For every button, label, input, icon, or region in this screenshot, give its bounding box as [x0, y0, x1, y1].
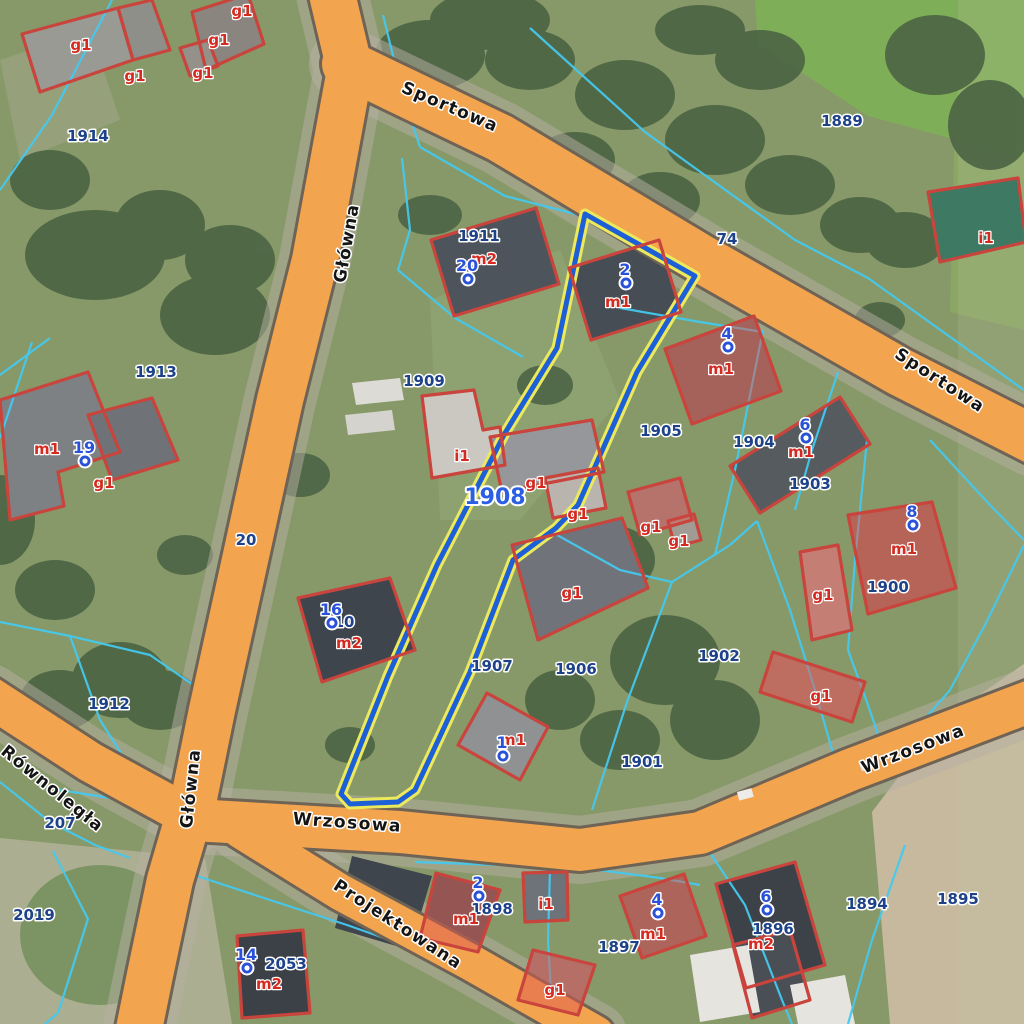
- parcel-label-1895: 1895: [937, 890, 979, 908]
- parcel-label-1901: 1901: [621, 753, 663, 771]
- building-label-m2: m2: [748, 935, 774, 953]
- building-label-g1: g1: [561, 584, 582, 602]
- address-number-label: 2: [619, 260, 630, 279]
- address-marker-center: [725, 344, 730, 349]
- building-label-g1: g1: [208, 31, 229, 49]
- building-label-g1: g1: [525, 474, 546, 492]
- selected-parcel-label-1908: 1908: [464, 485, 525, 510]
- address-marker-center: [476, 893, 481, 898]
- parcel-label-1906: 1906: [555, 660, 597, 678]
- map-viewport[interactable]: SportowaSportowaGłównaGłównaRównoległaWr…: [0, 0, 1024, 1024]
- address-marker-center: [764, 907, 769, 912]
- address-number-label: 14: [235, 945, 257, 964]
- building-label-g1: g1: [192, 64, 213, 82]
- building-label-m1: m1: [605, 293, 631, 311]
- address-point-2[interactable]: 2: [472, 873, 485, 903]
- parcel-label-1902: 1902: [698, 647, 740, 665]
- address-number-label: 20: [456, 256, 478, 275]
- building-label-g1: g1: [93, 474, 114, 492]
- parcel-label-1900: 1900: [867, 578, 909, 596]
- building-label-m1: m1: [788, 443, 814, 461]
- building-label-m1: m1: [891, 540, 917, 558]
- parcel-label-1914: 1914: [67, 127, 109, 145]
- address-number-label: 2: [472, 873, 483, 892]
- building-label-m2: m2: [336, 634, 362, 652]
- parcel-label-2019: 2019: [13, 906, 55, 924]
- parcel-label-2053: 2053: [265, 955, 307, 973]
- parcel-label-1904: 1904: [733, 433, 775, 451]
- parcel-label-1909: 1909: [403, 372, 445, 390]
- parcel-label-20: 20: [236, 531, 257, 549]
- address-point-1[interactable]: 1: [496, 733, 509, 763]
- address-marker-center: [803, 435, 808, 440]
- parcel-label-1905: 1905: [640, 422, 682, 440]
- building-label-g1: g1: [812, 586, 833, 604]
- address-point-2[interactable]: 2: [619, 260, 632, 290]
- address-point-4[interactable]: 4: [651, 890, 664, 920]
- address-marker-center: [655, 910, 660, 915]
- parcel-label-1897: 1897: [598, 938, 640, 956]
- building-label-g1: g1: [124, 67, 145, 85]
- building-label-g1: g1: [810, 687, 831, 705]
- building-label-m1: m1: [708, 360, 734, 378]
- building-label-g1: g1: [668, 532, 689, 550]
- address-number-label: 4: [721, 324, 732, 343]
- parcel-label-1889: 1889: [821, 112, 863, 130]
- parcel-label-1912: 1912: [88, 695, 130, 713]
- address-number-label: 6: [760, 887, 771, 906]
- address-number-label: 4: [651, 890, 662, 909]
- address-marker-center: [465, 276, 470, 281]
- address-number-label: 8: [906, 502, 917, 521]
- building-label-g1: g1: [231, 2, 252, 20]
- address-marker-center: [329, 620, 334, 625]
- address-point-6[interactable]: 6: [799, 415, 812, 445]
- address-marker-center: [244, 965, 249, 970]
- building-label-g1: g1: [567, 505, 588, 523]
- building-label-m1: m1: [34, 440, 60, 458]
- address-marker-center: [910, 522, 915, 527]
- building-label-g1: g1: [70, 36, 91, 54]
- address-marker-center: [82, 458, 87, 463]
- address-point-8[interactable]: 8: [906, 502, 919, 532]
- building-label-g1: g1: [640, 518, 661, 536]
- address-number-label: 16: [320, 600, 342, 619]
- parcel-label-1913: 1913: [135, 363, 177, 381]
- building-label-g1: g1: [544, 981, 565, 999]
- building-label-i1: i1: [978, 229, 994, 247]
- parcel-label-1911: 1911: [458, 227, 500, 245]
- address-point-4[interactable]: 4: [721, 324, 734, 354]
- address-marker-center: [623, 280, 628, 285]
- building-label-m1: m1: [453, 910, 479, 928]
- address-marker-center: [500, 753, 505, 758]
- building-label-m1: m1: [640, 925, 666, 943]
- building-label-m2: m2: [256, 975, 282, 993]
- parcel-label-1903: 1903: [789, 475, 831, 493]
- address-number-label: 6: [799, 415, 810, 434]
- map-canvas[interactable]: SportowaSportowaGłównaGłównaRównoległaWr…: [0, 0, 1024, 1024]
- building-label-i1: i1: [454, 447, 470, 465]
- address-point-6[interactable]: 6: [760, 887, 773, 917]
- parcel-label-1894: 1894: [846, 895, 888, 913]
- address-number-label: 1: [496, 733, 507, 752]
- parcel-label-1907: 1907: [471, 657, 513, 675]
- building-label-i1: i1: [538, 895, 554, 913]
- parcel-label-207: 207: [44, 814, 75, 832]
- address-number-label: 19: [73, 438, 95, 457]
- parcel-label-74: 74: [717, 230, 738, 248]
